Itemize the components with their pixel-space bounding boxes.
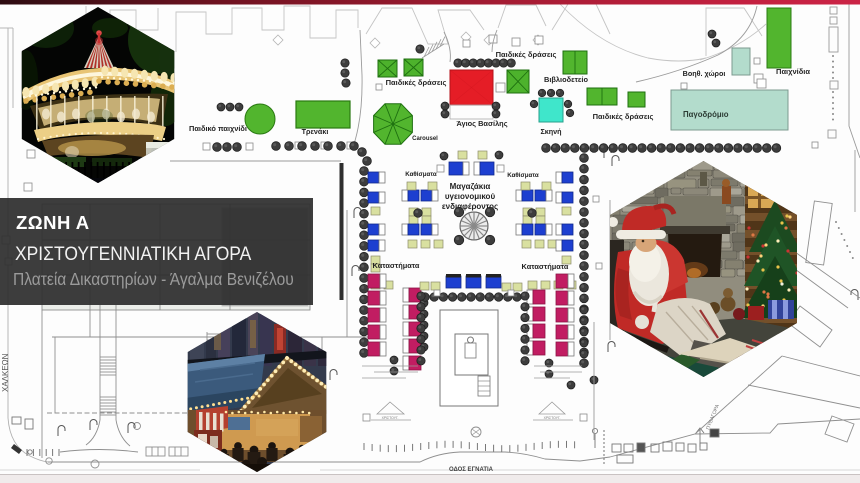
svg-text:Παιχνίδια: Παιχνίδια (776, 67, 810, 76)
svg-text:Βοηθ. χώροι: Βοηθ. χώροι (683, 69, 726, 78)
svg-text:Παιδικές δράσεις: Παιδικές δράσεις (386, 78, 447, 87)
svg-text:Παγοδρόμιο: Παγοδρόμιο (683, 110, 729, 119)
svg-text:ΧΡΙΣΤΟΥΓ.: ΧΡΙΣΤΟΥΓ. (544, 416, 561, 420)
svg-text:ΧΑΛΚΕΩΝ: ΧΑΛΚΕΩΝ (1, 353, 10, 392)
svg-text:Καταστήματα: Καταστήματα (373, 261, 420, 270)
svg-text:Βιβλιοδετείο: Βιβλιοδετείο (544, 75, 588, 84)
svg-text:Τρενάκι: Τρενάκι (302, 127, 329, 136)
svg-text:Καθίσματα: Καθίσματα (507, 172, 539, 179)
svg-text:Καθίσματα: Καθίσματα (405, 171, 437, 178)
svg-text:ΧΡΙΣΤΟΥΓ.: ΧΡΙΣΤΟΥΓ. (382, 416, 399, 420)
svg-text:υγειονομικού: υγειονομικού (445, 192, 496, 201)
svg-text:Άγιος Βασίλης: Άγιος Βασίλης (456, 119, 507, 128)
svg-text:ΖΩΝΗ Α: ΖΩΝΗ Α (16, 212, 90, 233)
svg-text:Carousel: Carousel (412, 136, 438, 142)
svg-text:ΟΔΟΣ ΕΓΝΑΤΙΑ: ΟΔΟΣ ΕΓΝΑΤΙΑ (449, 467, 494, 473)
svg-text:Σκηνή: Σκηνή (540, 127, 561, 136)
svg-text:Παιδικό παιχνίδι: Παιδικό παιχνίδι (189, 124, 247, 133)
svg-text:ΧΡΙΣΤΟΥΓΕΝΝΙΑΤΙΚΗ ΑΓΟΡΑ: ΧΡΙΣΤΟΥΓΕΝΝΙΑΤΙΚΗ ΑΓΟΡΑ (15, 242, 252, 264)
svg-text:Παιδικές δράσεις: Παιδικές δράσεις (593, 112, 654, 121)
svg-text:Μαγαζάκια: Μαγαζάκια (450, 182, 491, 191)
svg-text:Καταστήματα: Καταστήματα (522, 262, 569, 271)
svg-text:Πλατεία Δικαστηρίων - Άγαλμα Β: Πλατεία Δικαστηρίων - Άγαλμα Βενιζέλου (13, 269, 294, 289)
svg-text:Παιδικές δράσεις: Παιδικές δράσεις (496, 50, 557, 59)
